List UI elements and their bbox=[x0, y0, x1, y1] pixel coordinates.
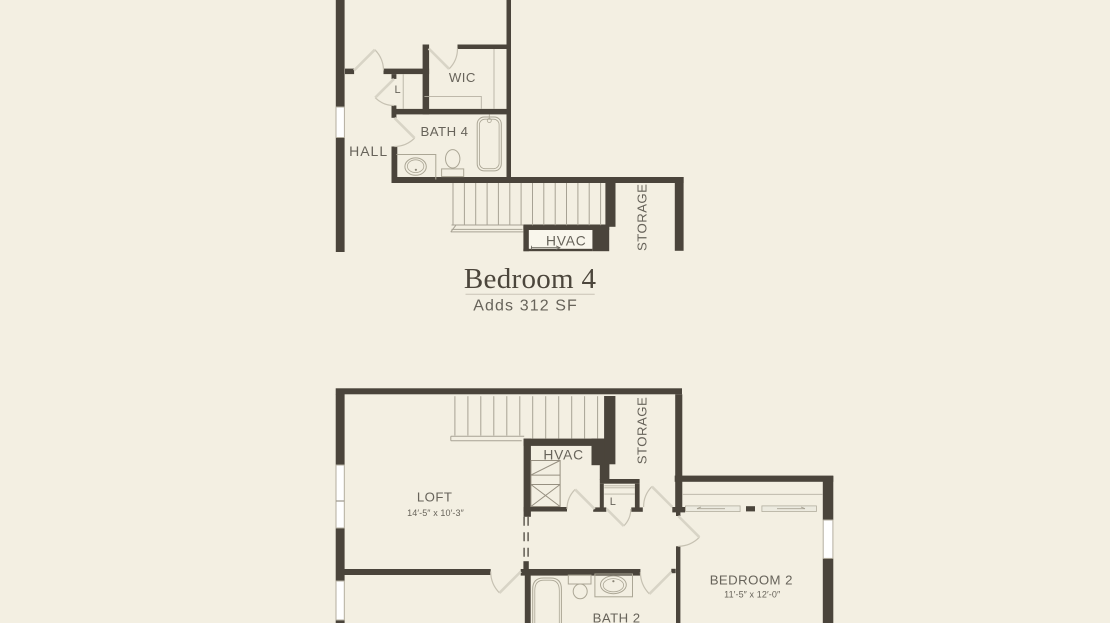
svg-text:HVAC: HVAC bbox=[543, 448, 584, 463]
svg-text:14′-5″ x 10′-3″: 14′-5″ x 10′-3″ bbox=[407, 508, 464, 518]
svg-text:BEDROOM 2: BEDROOM 2 bbox=[710, 573, 793, 588]
svg-text:LOFT: LOFT bbox=[417, 490, 453, 505]
svg-text:L: L bbox=[610, 496, 617, 508]
svg-text:STORAGE: STORAGE bbox=[635, 184, 650, 251]
svg-text:11′-5″ x 12′-0″: 11′-5″ x 12′-0″ bbox=[724, 590, 781, 600]
svg-text:HALL: HALL bbox=[349, 143, 388, 159]
svg-text:BATH 4: BATH 4 bbox=[421, 124, 469, 139]
svg-text:HVAC: HVAC bbox=[546, 234, 587, 249]
svg-text:L: L bbox=[395, 84, 402, 96]
svg-text:BATH 2: BATH 2 bbox=[593, 611, 641, 623]
svg-text:Bedroom 4: Bedroom 4 bbox=[464, 263, 597, 295]
svg-text:STORAGE: STORAGE bbox=[635, 397, 650, 464]
svg-text:Adds 312 SF: Adds 312 SF bbox=[473, 297, 578, 314]
svg-text:WIC: WIC bbox=[449, 70, 476, 85]
